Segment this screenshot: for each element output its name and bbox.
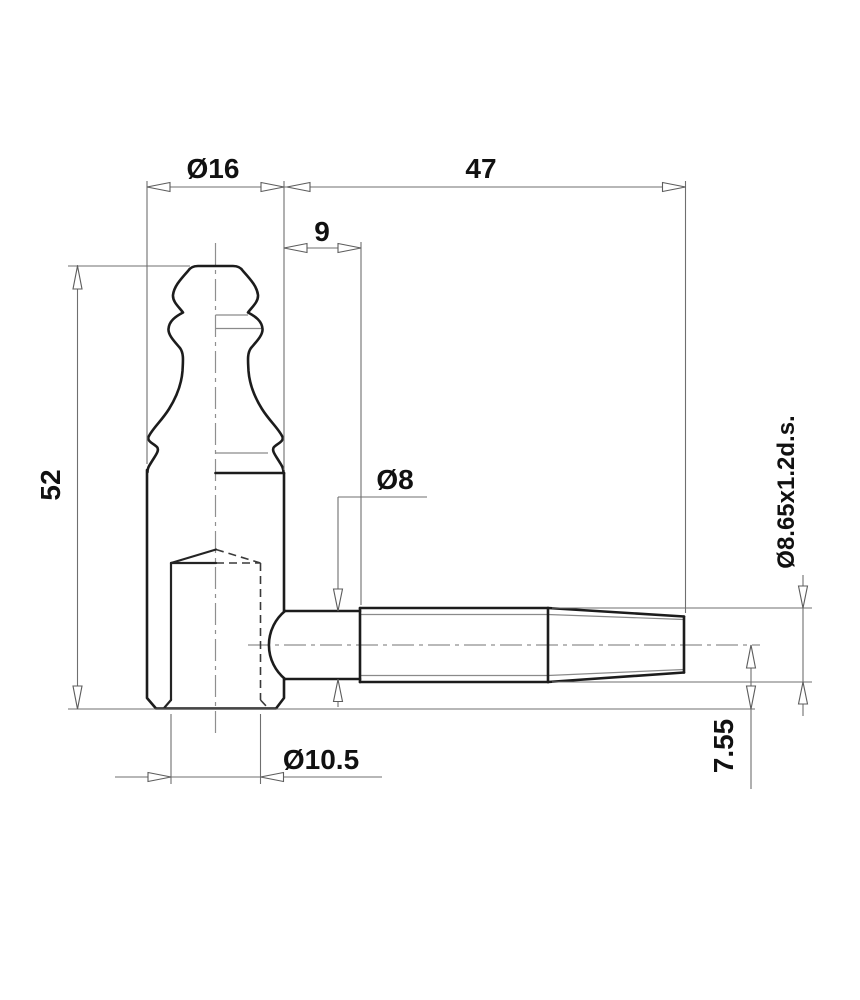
- hidden-bore-lines: [216, 550, 268, 708]
- arrow-pinlen-left: [287, 183, 310, 192]
- arrow-thread-top: [799, 586, 808, 608]
- part-outline: [147, 266, 684, 709]
- bore-mouth-chamfer-solid: [165, 700, 172, 708]
- arrow-pindia-bottom: [334, 680, 343, 702]
- dimension-lines: [78, 187, 804, 789]
- label-pin-plain-length: 9: [314, 216, 330, 247]
- arrow-bore-left: [148, 773, 171, 782]
- label-bore-diameter: Ø10.5: [283, 744, 359, 775]
- centerlines: [216, 243, 761, 734]
- arrow-knuckle-right: [261, 183, 284, 192]
- label-pin-total-length: 47: [465, 153, 496, 184]
- label-thread-spec: Ø8.65x1.2d.s.: [773, 415, 800, 568]
- arrow-offset-bottom: [747, 686, 756, 709]
- bore-mouth-chamfer-hidden: [261, 700, 268, 708]
- arrow-plain-right: [338, 244, 361, 253]
- arrow-pindia-top: [334, 589, 343, 611]
- arrow-offset-top: [747, 645, 756, 668]
- bore-cone-solid: [171, 550, 216, 564]
- arrow-pinlen-right: [663, 183, 686, 192]
- arrow-thread-bottom: [799, 682, 808, 704]
- label-body-height: 52: [35, 469, 66, 500]
- label-pin-diameter: Ø8: [376, 464, 413, 495]
- technical-drawing-page: Ø16 47 9 52 Ø8 Ø8.65x1.2d.s. Ø10.5 7.55: [0, 0, 860, 1000]
- label-knuckle-diameter: Ø16: [187, 153, 240, 184]
- arrowheads: [73, 183, 808, 782]
- tip-taper-bottom: [548, 673, 684, 683]
- arrow-bore-right: [261, 773, 284, 782]
- arrow-knuckle-left: [147, 183, 170, 192]
- hinge-pin-drawing: Ø16 47 9 52 Ø8 Ø8.65x1.2d.s. Ø10.5 7.55: [0, 0, 860, 1000]
- bore-cone-hidden: [216, 550, 261, 564]
- extension-lines: [68, 181, 812, 784]
- arrow-plain-left: [284, 244, 307, 253]
- arrow-height-top: [73, 266, 82, 289]
- thin-feature-lines: [216, 315, 685, 676]
- arrow-height-bottom: [73, 686, 82, 709]
- label-axis-offset: 7.55: [708, 719, 739, 774]
